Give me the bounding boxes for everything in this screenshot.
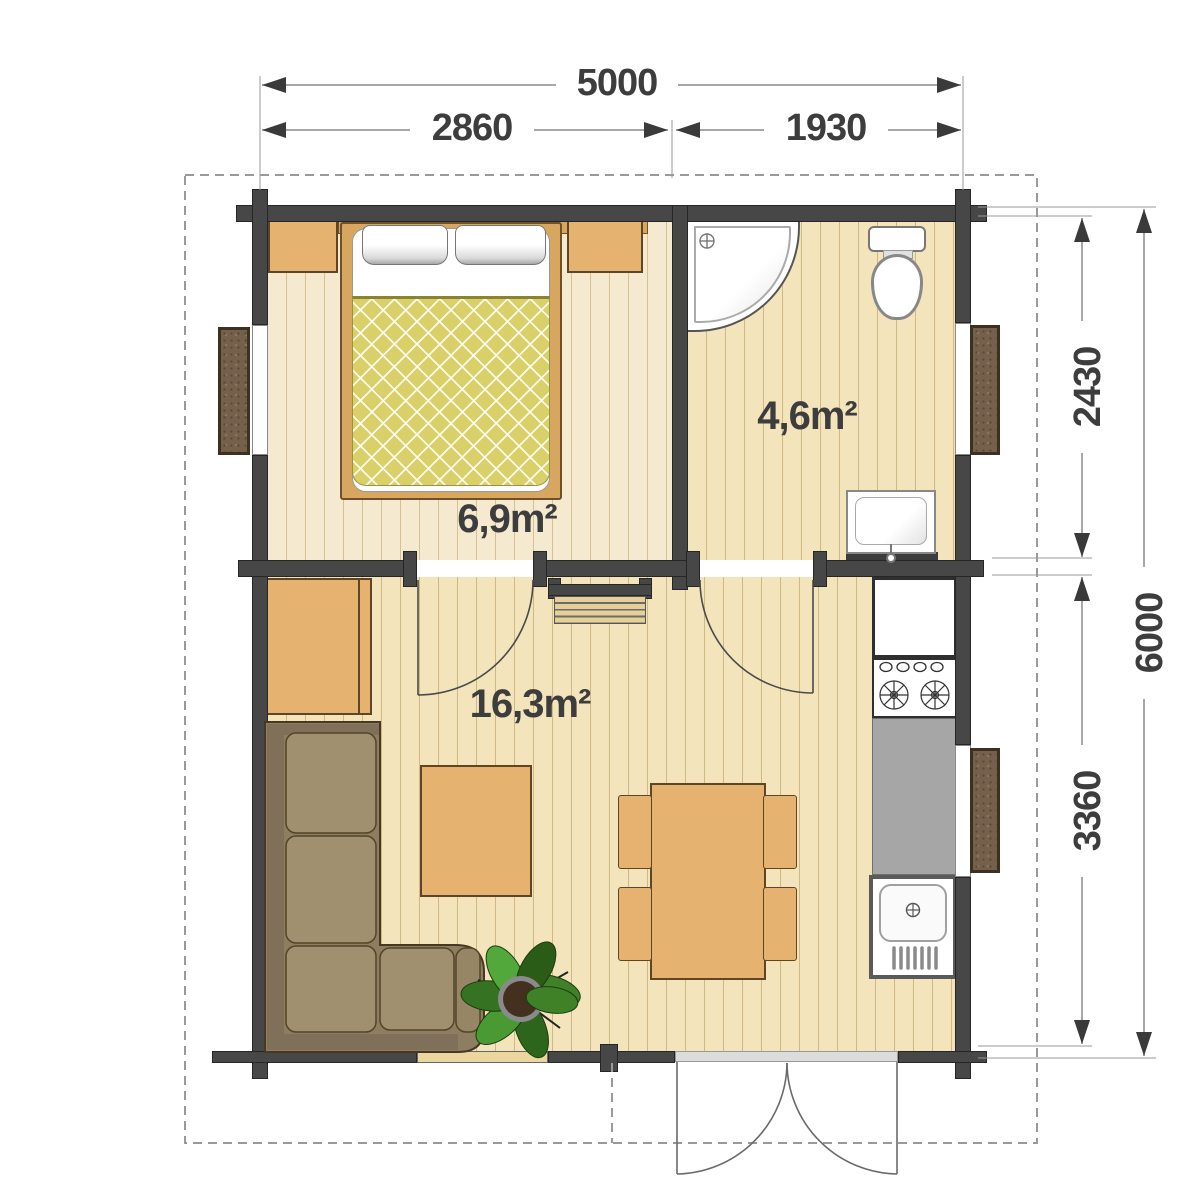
wall-middle-center bbox=[533, 560, 700, 577]
dining-table bbox=[650, 783, 766, 980]
bed-pillow-right bbox=[455, 225, 546, 265]
wall-right-lower bbox=[955, 877, 971, 1079]
door-post-bathroom-left bbox=[686, 551, 700, 587]
wall-right-mid bbox=[955, 455, 971, 745]
door-post-bedroom-right bbox=[533, 551, 547, 587]
kitchen-counter bbox=[872, 718, 957, 875]
entrance-double-door bbox=[677, 1062, 897, 1174]
wardrobe-door-line bbox=[358, 580, 360, 713]
bed-pillow-left bbox=[362, 225, 448, 265]
door-post-bedroom-left bbox=[403, 551, 417, 587]
toilet-tank bbox=[868, 226, 926, 252]
window-kitchen-right bbox=[955, 745, 971, 877]
dimension-right-upper-span: 2430 bbox=[1069, 321, 1107, 453]
dimension-top-total: 5000 bbox=[556, 64, 678, 102]
coffee-table bbox=[420, 765, 532, 897]
post-bottom-wall bbox=[600, 1044, 618, 1072]
wall-left-upper bbox=[252, 189, 268, 325]
wardrobe bbox=[265, 578, 372, 715]
window-bottom-wall bbox=[417, 1051, 548, 1063]
wall-bottom-left bbox=[212, 1051, 417, 1063]
dining-chair-3 bbox=[763, 795, 797, 869]
bed-blanket bbox=[352, 296, 550, 486]
window-bedroom-left bbox=[252, 325, 268, 455]
nightstand-right bbox=[567, 215, 643, 273]
washbasin-bowl bbox=[855, 497, 927, 545]
wall-bottom-right bbox=[898, 1051, 987, 1063]
dimension-top-right-span: 1930 bbox=[764, 109, 888, 147]
window-bathroom-right bbox=[955, 323, 971, 455]
bench-slats bbox=[554, 596, 646, 624]
entrance-threshold bbox=[675, 1051, 898, 1062]
kitchen-cabinet bbox=[872, 577, 957, 658]
dimension-right-lower-span: 3360 bbox=[1069, 745, 1107, 877]
nightstand-left bbox=[268, 215, 338, 273]
window-shutter-right-bottom bbox=[970, 748, 1000, 873]
wall-middle-right bbox=[813, 560, 984, 577]
wall-right-upper bbox=[955, 189, 971, 323]
dining-chair-2 bbox=[618, 887, 652, 961]
bedroom-area-label: 6,9m² bbox=[427, 499, 587, 539]
bathroom-area-label: 4,6m² bbox=[727, 396, 887, 436]
toilet-bowl bbox=[871, 254, 923, 320]
dimension-right-total: 6000 bbox=[1131, 567, 1169, 699]
living-room-area-label: 16,3m² bbox=[430, 684, 630, 724]
wall-middle-left bbox=[238, 560, 417, 577]
stove bbox=[872, 658, 957, 718]
wall-partition-bed-bath bbox=[672, 205, 688, 590]
bench-rail bbox=[548, 584, 652, 596]
floor-plan: 5000 2860 1930 2430 3360 6000 6,9m² 4,6m… bbox=[0, 0, 1200, 1200]
dining-chair-1 bbox=[618, 795, 652, 869]
window-shutter-right-top bbox=[970, 325, 1000, 455]
wall-left-lower bbox=[252, 455, 268, 1079]
dining-chair-4 bbox=[763, 887, 797, 961]
window-shutter-left bbox=[218, 327, 250, 455]
wall-top bbox=[236, 205, 987, 222]
dimension-top-left-span: 2860 bbox=[410, 109, 534, 147]
door-post-bathroom-right bbox=[813, 551, 827, 587]
sink-basin bbox=[879, 884, 947, 942]
